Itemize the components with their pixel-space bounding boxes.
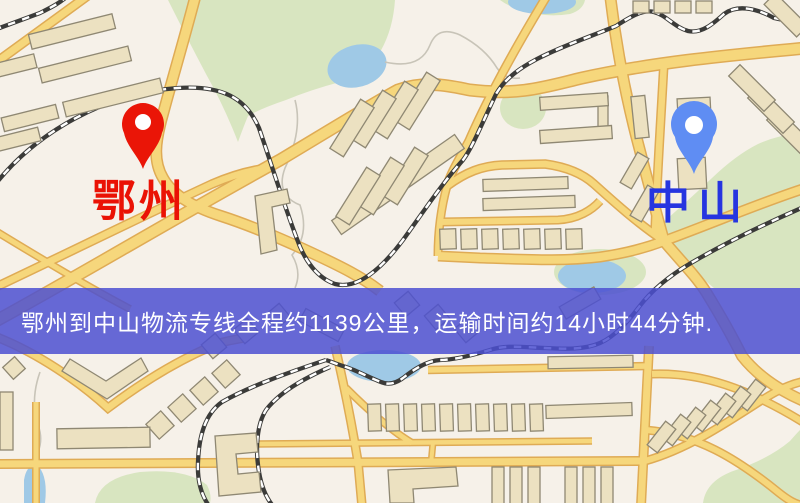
map-canvas[interactable]: 鄂州 中山 — [0, 0, 800, 503]
route-info-banner: 鄂州到中山物流专线全程约1139公里，运输时间约14小时44分钟. — [0, 288, 800, 354]
map-image: 鄂州 中山 鄂州到中山物流专线全程约1139公里，运输时间约14小时44分钟. — [0, 0, 800, 503]
route-info-text: 鄂州到中山物流专线全程约1139公里，运输时间约14小时44分钟. — [21, 304, 713, 338]
origin-label: 鄂州 — [92, 177, 186, 226]
destination-label: 中山 — [646, 179, 750, 228]
